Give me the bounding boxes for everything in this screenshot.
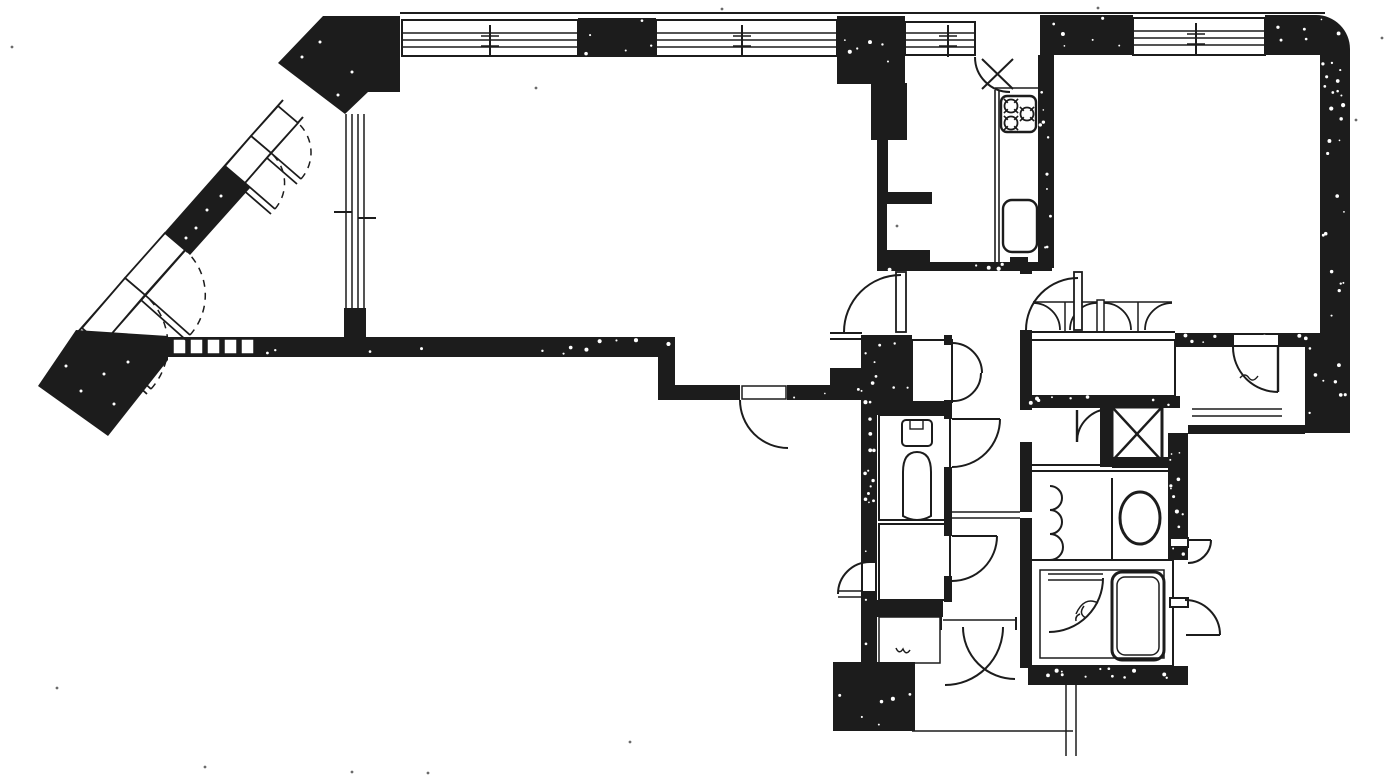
- storage-door-gap: [1233, 334, 1279, 346]
- wc-room: [879, 415, 950, 520]
- corridor-east-wall-top: [1020, 262, 1032, 274]
- vent-square-2: [190, 339, 203, 354]
- terrace-door-leaf: [742, 386, 786, 399]
- stove-burner-2: [1004, 116, 1018, 130]
- bathroom-outer-wall: [1030, 560, 1173, 666]
- kitchen-service-door-arc: [975, 57, 1010, 92]
- wall-pier-top-3: [1040, 15, 1133, 55]
- wall-pier-top-1: [578, 18, 656, 57]
- floor-plan-canvas: [0, 0, 1389, 776]
- kitchen-wall-left-lower: [877, 204, 887, 252]
- vent-square-3: [207, 339, 220, 354]
- accordion-door: [1050, 486, 1063, 560]
- corner-wall-top-left: [278, 16, 400, 114]
- entry-pier-wall: [833, 662, 915, 731]
- shower-scribble: [1076, 601, 1098, 621]
- utility-door-arc: [952, 536, 997, 581]
- kitchen-wall-left-mid: [877, 140, 888, 195]
- window-top-d: [1133, 18, 1265, 55]
- utility-room: [879, 524, 950, 600]
- right-door-1-arc: [1188, 540, 1211, 563]
- vent-square-1: [173, 339, 186, 354]
- closet-bifold-frame: [1097, 300, 1104, 332]
- window-top-a: [402, 20, 578, 57]
- casement-arc-2: [271, 153, 285, 209]
- toilet-bowl: [903, 452, 931, 520]
- closet-bifold-arc-2a: [1104, 303, 1131, 330]
- junction-block: [830, 368, 877, 400]
- dining-door-leaf: [896, 272, 906, 332]
- shaft-south-wall: [1112, 457, 1170, 468]
- right-door-2-arc: [1185, 600, 1220, 635]
- hall-closet: [912, 340, 952, 402]
- vestibule-side-room: [879, 617, 940, 663]
- corridor-west-wall-1: [944, 335, 952, 345]
- wall-right-lower: [1305, 345, 1350, 433]
- window-top-b: [656, 20, 837, 57]
- stove-burner-1: [1004, 99, 1018, 113]
- wall-step: [658, 337, 675, 400]
- kitchen-bedroom-wall: [1038, 55, 1054, 268]
- dining-south-wall-1: [675, 385, 740, 400]
- corridor-east-wall-2: [1020, 442, 1032, 512]
- kitchen-sink: [1003, 200, 1037, 252]
- casement-sash-3b: [141, 300, 186, 340]
- bathtub-inner: [1117, 577, 1159, 655]
- washbasin: [1120, 492, 1160, 544]
- terrace-door-arc: [740, 400, 788, 448]
- wall-corner-top-right: [1265, 15, 1350, 345]
- stove-burner-3: [1020, 107, 1034, 121]
- partition-post: [344, 308, 366, 342]
- entry-door-arc-1: [945, 627, 1003, 685]
- bathtub: [1112, 572, 1164, 660]
- toilet-tank-notch: [910, 420, 923, 429]
- corridor-east-wall-1: [1020, 330, 1032, 410]
- shaft-west-wall: [1100, 403, 1112, 467]
- wc-door-arc: [952, 419, 1000, 467]
- closet-bifold-arc-1a: [1033, 303, 1060, 330]
- storage-scribble: [1240, 375, 1258, 380]
- vent-square-4: [224, 339, 237, 354]
- bathroom-door-arc: [1049, 578, 1103, 632]
- bedroom-door-leaf: [1074, 272, 1082, 330]
- wc-north-wall: [877, 403, 952, 415]
- kitchen-wall-left-upper: [871, 83, 907, 140]
- storage-door-arc: [1233, 347, 1278, 392]
- closet-body: [1028, 340, 1175, 396]
- casement-arc-1: [298, 123, 311, 179]
- kitchen-wall-stub-1: [877, 192, 932, 204]
- hall-closet-fold-arc-1: [952, 343, 982, 373]
- corner-wall-bottom-left: [38, 330, 168, 436]
- vent-square-5: [241, 339, 254, 354]
- dining-door-arc: [844, 275, 901, 332]
- window-top-c: [905, 22, 975, 57]
- casement-arc-3: [185, 250, 205, 335]
- right-door-gap-1: [1170, 538, 1188, 547]
- wall-pier-top-2: [837, 16, 905, 84]
- storage-south-wall: [1188, 425, 1305, 434]
- west-service-door-gap: [862, 562, 876, 592]
- shoe-cabinet-mark: [896, 648, 910, 653]
- toilet-tank: [902, 420, 932, 446]
- hall-closet-fold-arc-2: [952, 373, 981, 401]
- closet-bifold-arc-2b: [1145, 303, 1172, 330]
- kitchen-wall-stub-2: [877, 250, 930, 262]
- vestibule-north-wall: [877, 600, 943, 617]
- entry-door-arc-2: [963, 627, 1015, 679]
- floor-plan-scan-page: [0, 0, 1389, 776]
